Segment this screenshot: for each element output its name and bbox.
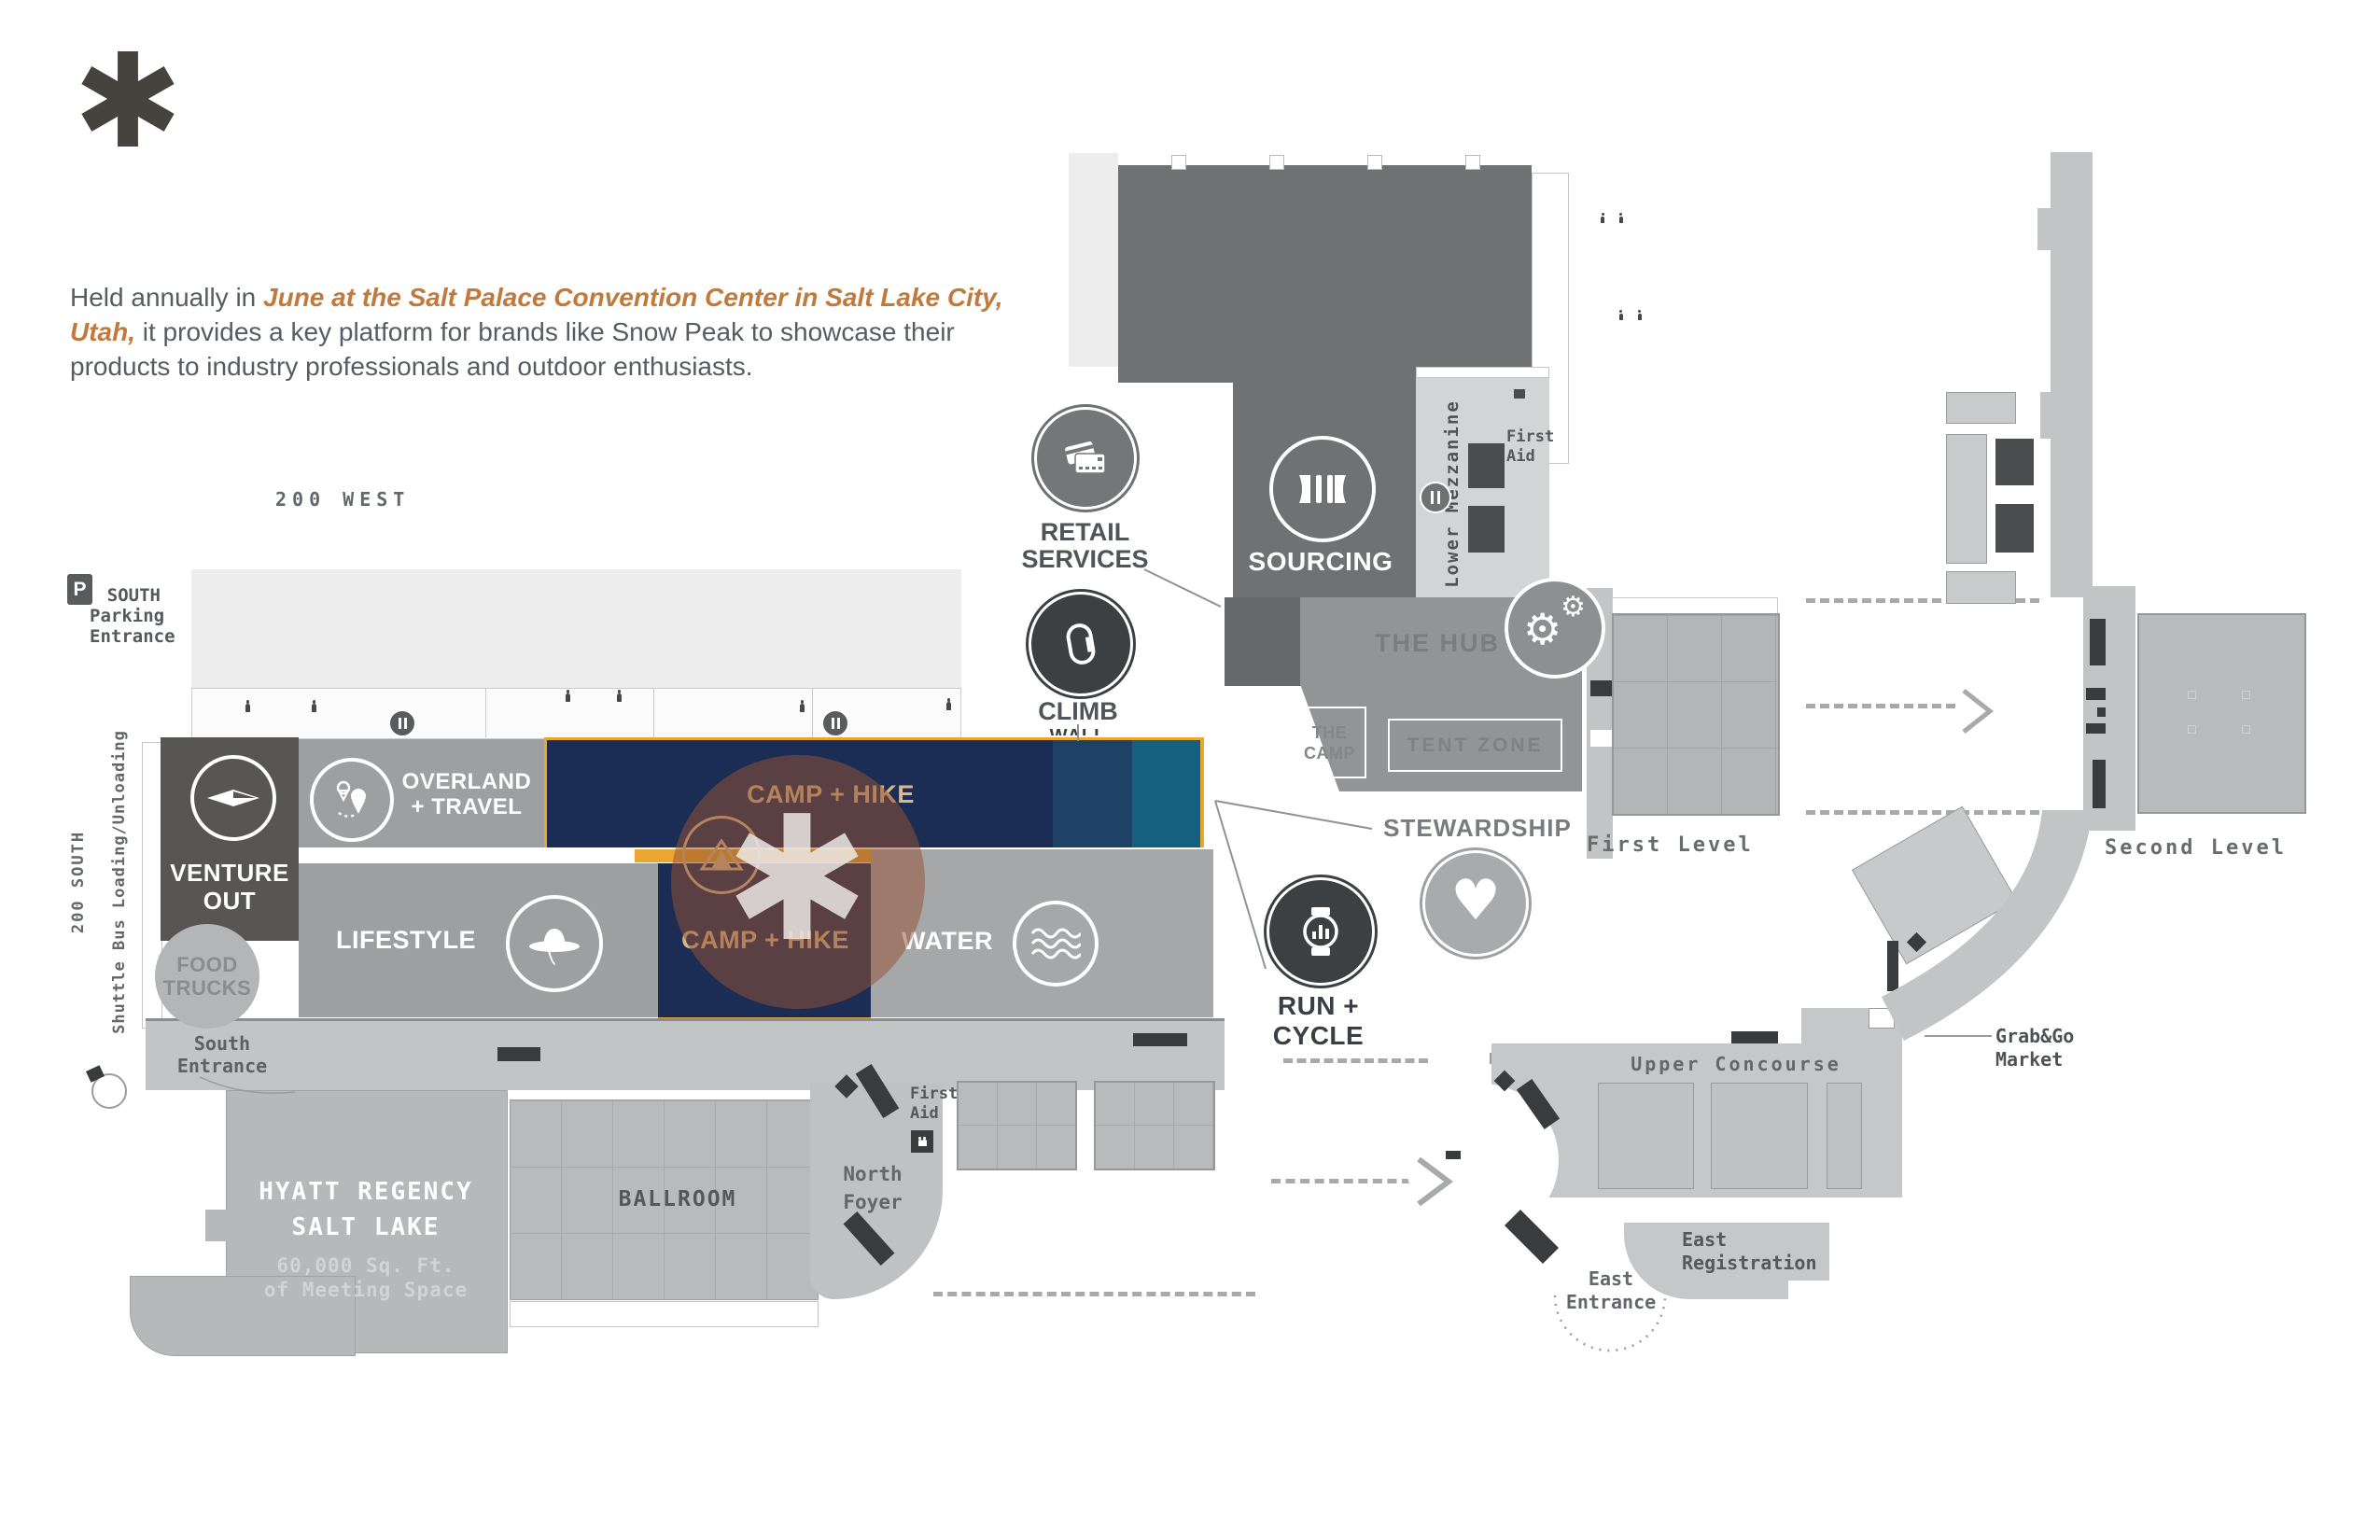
food-trucks-badge: FOOD TRUCKS [155, 924, 259, 1029]
route-chevron-arrow [1419, 1159, 1449, 1204]
gears-icon: ⚙ ⚙ [1505, 578, 1605, 679]
second-level-ramp [1882, 810, 2093, 1041]
hyatt-sqft-2: of Meeting Space [245, 1279, 487, 1301]
south-entrance-door-arc [200, 1077, 295, 1093]
food-trucks-label: FOOD TRUCKS [163, 953, 252, 1000]
ballroom-label: BALLROOM [603, 1187, 752, 1211]
hyatt-name: HYATT REGENCY [245, 1178, 487, 1206]
route-chevron-arrow [1964, 691, 1990, 732]
stewardship-connector-line [1215, 801, 1372, 829]
map-lines-overlay [0, 0, 2380, 1540]
restroom-box [911, 1130, 933, 1153]
floor-plan-canvas: ✱ Held annually in June at the Salt Pala… [0, 0, 2380, 1540]
north-foyer-label: North Foyer [821, 1160, 924, 1216]
gear-glyph: ⚙ [1523, 604, 1561, 654]
first-aid-label-north: First Aid [910, 1085, 985, 1124]
retail-connector-line [1144, 569, 1221, 607]
restroom-icon [922, 1137, 927, 1146]
gear-glyph: ⚙ [1561, 591, 1586, 623]
upper-concourse-label: Upper Concourse [1587, 1053, 1885, 1075]
east-registration-label: East Registration [1682, 1228, 1887, 1275]
hyatt-name-2: SALT LAKE [245, 1213, 487, 1241]
run-cycle-connector-line [1215, 801, 1266, 969]
south-entrance-label: South Entrance [157, 1032, 287, 1077]
hyatt-sqft: 60,000 Sq. Ft. [245, 1254, 487, 1277]
asterisk-watermark-icon: ✱ [704, 786, 890, 973]
east-entrance-label: East Entrance [1553, 1267, 1669, 1314]
